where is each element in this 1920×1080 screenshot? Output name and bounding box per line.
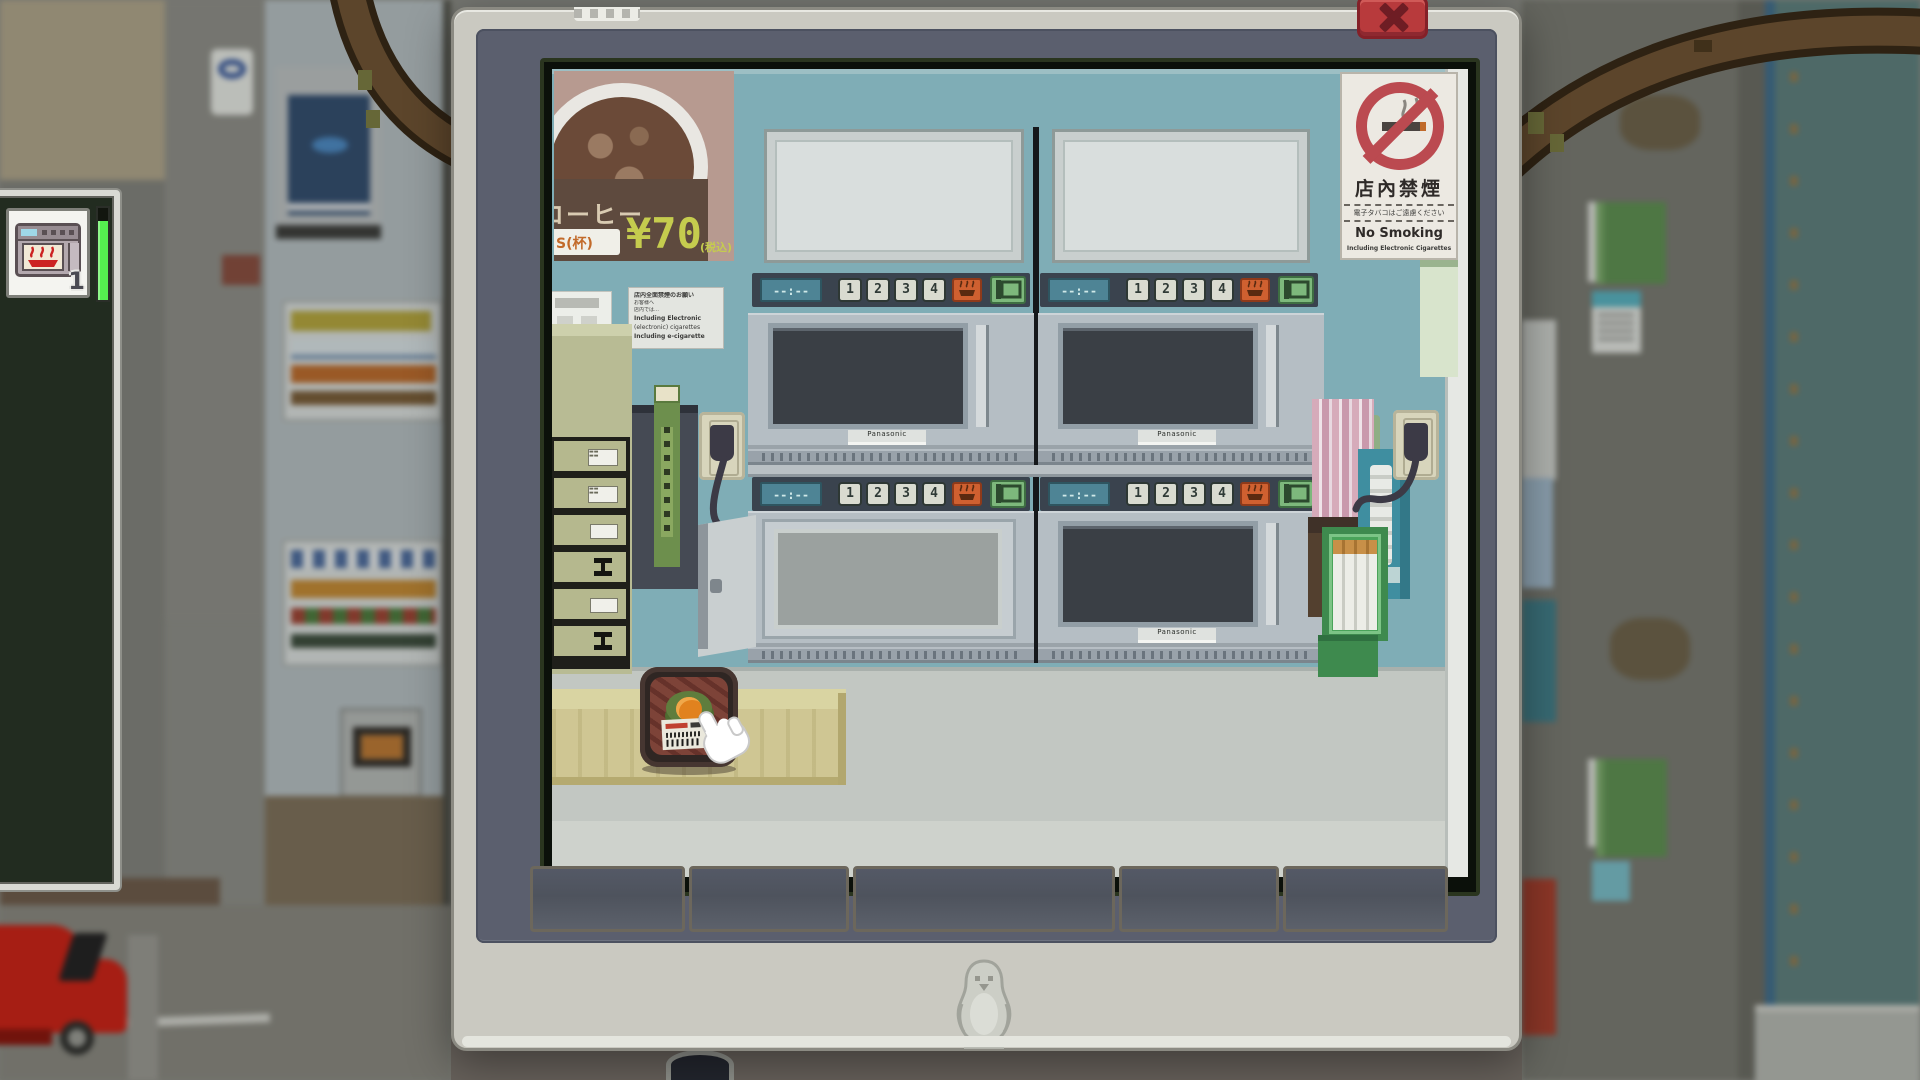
- microwave-key-4[interactable]: 4: [1210, 278, 1234, 302]
- power-cord-right: [1352, 451, 1442, 521]
- device-button-5[interactable]: [1283, 866, 1448, 932]
- device-bottom-strip: [462, 1036, 1511, 1047]
- screen-bezel: コーヒー S(杯) ¥70 (税込): [476, 29, 1497, 943]
- microwave-top-right[interactable]: Panasonic: [1038, 313, 1324, 449]
- durability-fill: [98, 221, 108, 300]
- microwave-door-handle: [1266, 523, 1279, 625]
- microwave-door-window: [1058, 323, 1258, 429]
- coffee-price: ¥70: [626, 209, 702, 258]
- open-door-button[interactable]: [1278, 276, 1314, 304]
- door-open-icon: [994, 484, 1022, 504]
- microwave-key-2[interactable]: 2: [1154, 482, 1178, 506]
- heat-button[interactable]: [1240, 278, 1270, 302]
- microwave-brand-label: Panasonic: [1138, 628, 1216, 643]
- steam-bowl-icon: [1244, 280, 1266, 298]
- player-head-silhouette: [666, 1050, 734, 1080]
- microwave-key-4[interactable]: 4: [922, 278, 946, 302]
- microwave-key-3[interactable]: 3: [894, 482, 918, 506]
- microwave-key-4[interactable]: 4: [922, 482, 946, 506]
- microwave-key-1[interactable]: 1: [1126, 278, 1150, 302]
- microwave-timer-display: --:--: [760, 482, 822, 506]
- drawer-unit: ▬▬▬▬ ▬▬▬▬: [552, 437, 630, 669]
- heat-button[interactable]: [1240, 482, 1270, 506]
- steam-bowl-icon: [1244, 484, 1266, 502]
- durability-bar: [96, 206, 110, 302]
- coffee-tax-note: (税込): [700, 239, 732, 255]
- no-smoking-icon: [1356, 82, 1444, 170]
- microwave-vent: [748, 449, 1034, 465]
- notice-poster: 店内全面禁煙のお願い お客様へ 店内では… Including Electron…: [628, 287, 724, 349]
- coffee-size-label: S(杯): [556, 233, 593, 253]
- microwave-brand-label: Panasonic: [848, 430, 926, 445]
- door-open-icon: [1282, 280, 1310, 300]
- open-microwave-door[interactable]: [698, 515, 756, 657]
- microwave-key-2[interactable]: 2: [866, 482, 890, 506]
- device-button-2[interactable]: [689, 866, 849, 932]
- chopstick-box[interactable]: [1322, 527, 1388, 641]
- menu-signboard-left: [764, 129, 1024, 263]
- no-smoking-en-title: No Smoking: [1342, 226, 1456, 241]
- microwave-panel-bottom-right: --:-- 1 2 3 4: [1040, 477, 1318, 511]
- microwave-key-3[interactable]: 3: [894, 278, 918, 302]
- microwave-vent: [1038, 449, 1324, 465]
- notice-line: 店内全面禁煙のお願い: [634, 292, 718, 300]
- no-smoking-title: 店內禁煙: [1342, 174, 1456, 201]
- notice-line: Including e-cigarette: [634, 332, 718, 341]
- inventory-panel: 1: [0, 190, 120, 890]
- microwave-door-window: [768, 323, 968, 429]
- no-smoking-sign: 店內禁煙 電子タバコはご遠慮ください No Smoking Including …: [1340, 72, 1458, 260]
- item-count-badge: 1: [68, 267, 85, 295]
- door-open-icon: [1282, 484, 1310, 504]
- microwave-key-2[interactable]: 2: [1154, 278, 1178, 302]
- device-button-3[interactable]: [853, 866, 1115, 932]
- store-scene: コーヒー S(杯) ¥70 (税込): [552, 69, 1468, 877]
- notice-line: 店内では…: [634, 307, 718, 314]
- notice-line: (electronic) cigarettes: [634, 323, 718, 332]
- microwave-minigame-window: コーヒー S(杯) ¥70 (税込): [451, 7, 1522, 1051]
- green-book: [654, 399, 680, 567]
- notice-line: お客様へ: [634, 300, 718, 307]
- device-top-vent: [574, 7, 640, 21]
- green-poster-bottom: [1420, 267, 1458, 377]
- notice-line: Including Electronic: [634, 314, 718, 323]
- microwave-door-window: [1058, 521, 1258, 627]
- heat-button[interactable]: [952, 278, 982, 302]
- microwave-timer-display: --:--: [1048, 278, 1110, 302]
- microwave-door-handle: [976, 325, 989, 427]
- game-screen: コーヒー S(杯) ¥70 (税込): [540, 58, 1480, 896]
- shelf-strip: [748, 465, 1324, 477]
- chopstick-box-base: [1318, 635, 1378, 677]
- microwave-key-1[interactable]: 1: [1126, 482, 1150, 506]
- microwave-panel-top-left: --:-- 1 2 3 4: [752, 273, 1030, 307]
- steam-bowl-icon: [956, 280, 978, 298]
- microwave-key-1[interactable]: 1: [838, 482, 862, 506]
- microwave-bottom-left-open[interactable]: [748, 511, 1034, 647]
- menu-signboard-right: [1052, 129, 1310, 263]
- steam-bowl-icon: [956, 484, 978, 502]
- microwave-panel-top-right: --:-- 1 2 3 4: [1040, 273, 1318, 307]
- microwave-key-1[interactable]: 1: [838, 278, 862, 302]
- microwave-key-3[interactable]: 3: [1182, 278, 1206, 302]
- device-button-1[interactable]: [530, 866, 685, 932]
- microwave-key-4[interactable]: 4: [1210, 482, 1234, 506]
- microwave-timer-display: --:--: [1048, 482, 1110, 506]
- microwave-key-2[interactable]: 2: [866, 278, 890, 302]
- open-cavity: [774, 529, 1002, 629]
- microwave-top-left[interactable]: Panasonic: [748, 313, 1034, 449]
- no-smoking-subtitle: 電子タバコはご遠慮ください: [1344, 204, 1454, 222]
- coffee-size-chip: S(杯): [554, 229, 620, 255]
- door-inner-handle: [710, 579, 722, 593]
- device-button-4[interactable]: [1119, 866, 1279, 932]
- microwave-bottom-right[interactable]: Panasonic: [1038, 511, 1324, 647]
- chopstick-tips: [1333, 540, 1377, 554]
- microwave-vent: [1038, 647, 1324, 663]
- microwave-brand-label: Panasonic: [1138, 430, 1216, 445]
- close-button[interactable]: [1357, 0, 1428, 39]
- coffee-poster: コーヒー S(杯) ¥70 (税込): [554, 71, 734, 261]
- door-open-icon: [994, 280, 1022, 300]
- microwave-door-handle: [1266, 325, 1279, 427]
- microwave-vent: [748, 647, 1034, 663]
- microwave-panel-bottom-left: --:-- 1 2 3 4: [752, 477, 1030, 511]
- no-smoking-en-subtitle: Including Electronic Cigarettes: [1342, 245, 1456, 252]
- open-door-button[interactable]: [990, 480, 1026, 508]
- heat-button[interactable]: [952, 482, 982, 506]
- microwave-timer-display: --:--: [760, 278, 822, 302]
- game-root: コーヒー S(杯) ¥70 (税込): [0, 0, 1920, 1080]
- microwave-key-3[interactable]: 3: [1182, 482, 1206, 506]
- open-door-button[interactable]: [1278, 480, 1314, 508]
- inventory-slot-microwave[interactable]: 1: [6, 208, 90, 298]
- open-door-button[interactable]: [990, 276, 1026, 304]
